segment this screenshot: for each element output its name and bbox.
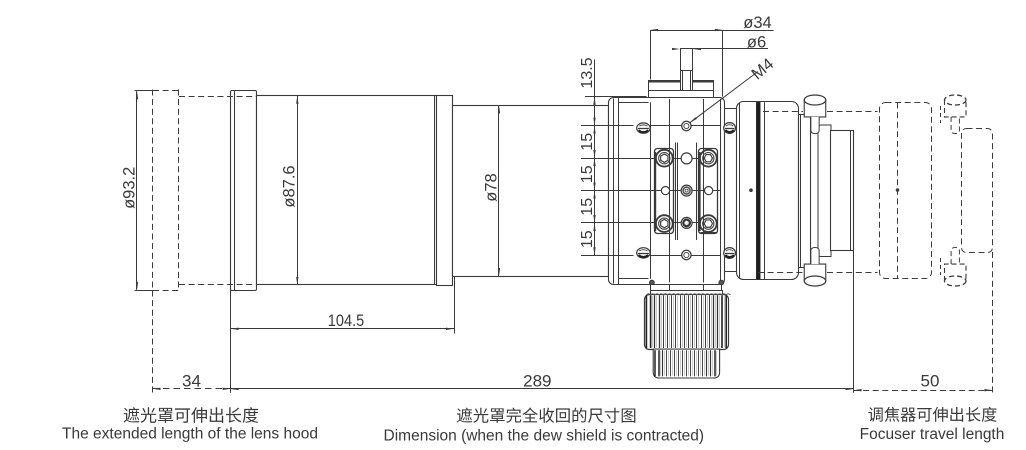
svg-text:15: 15 — [579, 230, 596, 248]
svg-text:13.5: 13.5 — [579, 57, 596, 88]
svg-text:ø78: ø78 — [482, 173, 500, 201]
svg-text:ø87.6: ø87.6 — [281, 165, 299, 207]
svg-text:15: 15 — [579, 133, 596, 151]
svg-text:15: 15 — [579, 165, 596, 183]
svg-text:Dimension (when the dew shield: Dimension (when the dew shield is contra… — [384, 427, 705, 444]
svg-text:104.5: 104.5 — [328, 311, 365, 330]
svg-text:50: 50 — [921, 372, 940, 391]
svg-text:The extended length of the len: The extended length of the lens hood — [62, 426, 318, 443]
svg-text:ø93.2: ø93.2 — [120, 167, 138, 209]
svg-text:ø6: ø6 — [747, 34, 766, 52]
svg-text:34: 34 — [182, 372, 201, 391]
svg-text:15: 15 — [579, 198, 596, 216]
svg-text:ø34: ø34 — [743, 14, 771, 32]
svg-text:Focuser travel length: Focuser travel length — [860, 426, 1005, 443]
svg-text:289: 289 — [523, 372, 551, 391]
